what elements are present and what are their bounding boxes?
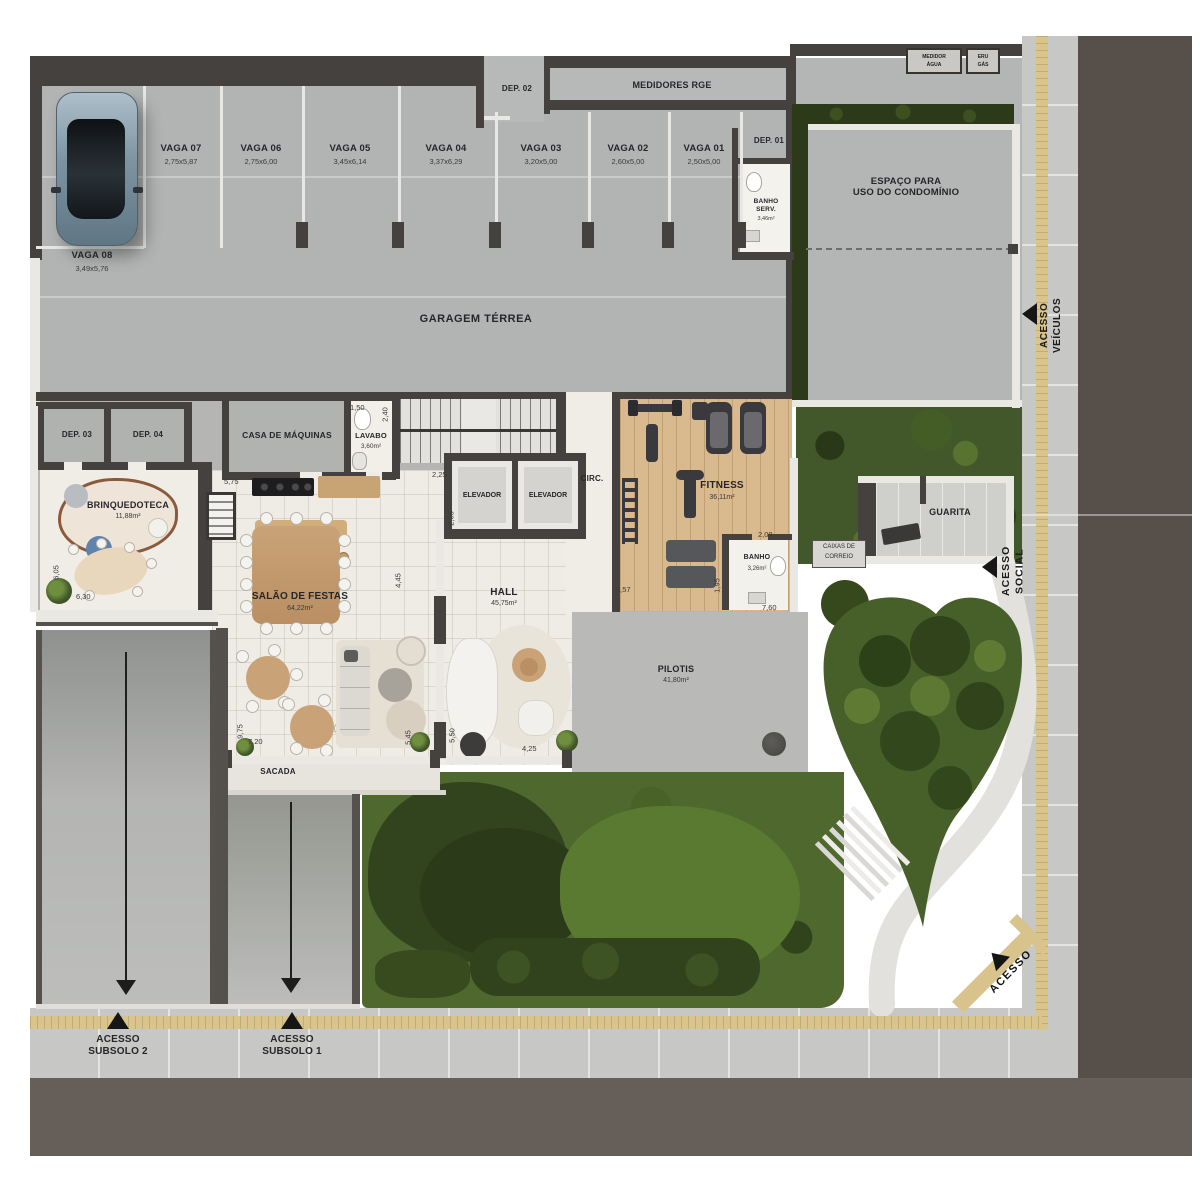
dim-425: 4,25 <box>522 744 537 753</box>
dep04-label: DEP. 04 <box>133 430 163 439</box>
brinq-door-gap <box>64 462 82 470</box>
toilet-icon <box>770 556 786 576</box>
vaga04-label: VAGA 04 <box>426 143 467 154</box>
stall-line <box>143 86 146 248</box>
vaga08-dims: 3,49x5,76 <box>76 264 109 273</box>
sacada-label: SACADA <box>260 767 295 776</box>
salao-hall-post <box>434 596 446 644</box>
chair <box>282 698 295 711</box>
tactile-strip-bottom <box>30 1016 1042 1029</box>
garage-label: GARAGEM TÉRREA <box>420 313 533 326</box>
gym-bench <box>646 424 658 462</box>
condo-dashed-line <box>806 248 1012 250</box>
wall-top-thin <box>548 56 794 68</box>
wall-post <box>562 750 572 768</box>
chair <box>132 586 143 597</box>
subsolo1-label: ACESSO SUBSOLO 1 <box>262 1034 322 1058</box>
ramp-b-wall-right <box>352 794 360 1008</box>
sink-icon <box>744 230 760 242</box>
vaga06-dims: 2,75x6,00 <box>245 157 278 166</box>
dim-720: 7,20 <box>248 737 263 746</box>
street-right <box>1078 36 1192 1154</box>
chair <box>96 538 107 549</box>
round-table <box>246 656 290 700</box>
dep-block-top <box>36 402 192 409</box>
dim-545: 5,45 <box>404 721 413 755</box>
coffee-table <box>378 668 412 702</box>
garage-pillar <box>582 222 594 248</box>
vaga05-label: VAGA 05 <box>330 143 371 154</box>
gym-weight <box>628 400 638 416</box>
dep-block-right <box>184 402 192 466</box>
acesso-veiculos-arrow-icon <box>1022 303 1037 325</box>
treadmill <box>706 402 732 454</box>
chair <box>260 622 273 635</box>
stairs-divider <box>400 429 556 432</box>
hall-label: HALL <box>490 587 517 599</box>
vaga02-label: VAGA 02 <box>608 143 649 154</box>
dim-445: 4,45 <box>394 564 403 598</box>
casa-maq-left <box>222 399 229 479</box>
banho-serv-wall-bottom <box>732 252 794 260</box>
chair <box>68 544 79 555</box>
chair <box>268 644 281 657</box>
chair <box>236 650 249 663</box>
acesso-social-label: ACESSO SOCIAL <box>1000 536 1027 606</box>
brinq-right-wall <box>198 467 212 615</box>
chair <box>318 694 331 707</box>
elevator-2: ELEVADOR <box>518 461 578 529</box>
dim-240: 2,40 <box>381 398 390 432</box>
wall-medidores-bottom <box>530 100 794 110</box>
dim-760: 7,60 <box>762 603 777 612</box>
ramp-curb <box>36 1004 360 1009</box>
medidor-agua-box: MEDIDOR ÁGUA <box>906 48 962 74</box>
ramp-a-arrowhead <box>116 980 136 995</box>
vaga07-dims: 2,75x5,87 <box>165 157 198 166</box>
vaga03-dims: 3,20x5,00 <box>525 157 558 166</box>
dim-357: 3,57 <box>616 585 631 594</box>
acesso-veiculos-label: ACESSO VEÍCULOS <box>1038 290 1064 360</box>
wood-armchair <box>512 648 546 682</box>
casa-maquinas-label: CASA DE MÁQUINAS <box>242 430 332 440</box>
dep02-label: DEP. 02 <box>502 84 532 93</box>
garage-pillar <box>296 222 308 248</box>
chair <box>240 578 253 591</box>
condo-wall-top <box>808 124 1014 130</box>
hedge-left <box>792 104 808 406</box>
car-mirror-right <box>133 187 143 193</box>
dim-225: 2,25 <box>432 470 447 479</box>
vaga01-label: VAGA 01 <box>684 143 725 154</box>
fitness-label: FITNESS <box>700 480 744 492</box>
guarita-wall-top <box>858 476 1008 483</box>
lavabo-area: 3,60m² <box>361 443 381 450</box>
pouf-white <box>148 518 168 538</box>
toilet-icon <box>746 172 762 192</box>
wall-post <box>430 750 440 768</box>
banho-serv-area: 3,46m² <box>757 216 774 222</box>
vaga05-dims: 3,45x6,14 <box>334 157 367 166</box>
subsolo2-arrow-icon <box>107 1012 129 1029</box>
chair <box>240 556 253 569</box>
vaga01-dims: 2,50x5,00 <box>688 157 721 166</box>
condo-post <box>1008 244 1018 254</box>
wood-cabinet <box>318 476 380 498</box>
ramp-top-line <box>36 622 218 626</box>
pouf-gray <box>64 484 88 508</box>
gym-weight <box>672 400 682 416</box>
guarita-label: GUARITA <box>929 507 971 518</box>
chair <box>124 542 135 553</box>
garage-pillar <box>489 222 501 248</box>
ramp-a-arrow <box>125 652 127 982</box>
chair <box>290 668 303 681</box>
banho-label: BANHO <box>744 554 771 562</box>
banho-wall-top <box>722 534 752 540</box>
chair <box>260 512 273 525</box>
cooktop-counter <box>252 478 314 496</box>
floor-plan: MEDIDOR ÁGUA ERU GÁS <box>0 0 1200 1200</box>
vaga08-label: VAGA 08 <box>72 250 113 261</box>
hall-bottom-wall <box>446 756 568 764</box>
treadmill <box>740 402 766 454</box>
condo-wall-right <box>1012 124 1020 408</box>
chair <box>320 622 333 635</box>
garage-pillar <box>734 222 746 248</box>
chair <box>146 558 157 569</box>
salao-bottom-wall <box>228 756 440 764</box>
banho-area: 3,26m² <box>748 566 767 572</box>
dep02-wall-left <box>476 56 484 128</box>
brinq-door-gap <box>128 462 146 470</box>
lavabo-label: LAVABO <box>355 432 387 441</box>
dim-630: 6,30 <box>76 592 91 601</box>
vaga03-label: VAGA 03 <box>521 143 562 154</box>
chair <box>290 512 303 525</box>
banho-serv-label: BANHO SERV. <box>754 198 779 213</box>
ramp-b-arrow <box>290 802 292 980</box>
acesso-social-arrow-icon <box>982 556 997 578</box>
vaga06-label: VAGA 06 <box>241 143 282 154</box>
circ-label: CIRC. <box>581 474 604 483</box>
elevator-1: ELEVADOR <box>452 461 512 529</box>
property-line <box>1022 514 1192 516</box>
salao-area: 64,22m² <box>287 605 313 612</box>
car <box>56 92 138 246</box>
mailboxes: CAIXAS DE CORREIO <box>812 540 866 568</box>
plant <box>410 732 430 752</box>
dep01-label: DEP. 01 <box>754 136 784 145</box>
ramp-a-wall-left <box>36 630 42 1008</box>
car-roof <box>67 119 125 219</box>
ramp-top-band <box>36 610 218 622</box>
radiator <box>206 492 236 540</box>
ramp-b-arrowhead <box>281 978 301 993</box>
guarita-floor <box>876 483 1006 557</box>
plant <box>556 730 578 752</box>
lavabo-right <box>392 399 400 479</box>
dim-975: 9,75 <box>236 715 245 749</box>
chair <box>338 578 351 591</box>
elevator-1-label: ELEVADOR <box>463 492 501 499</box>
garage-pillar <box>392 222 404 248</box>
sink-icon <box>352 452 367 470</box>
dim-150: 1,50 <box>350 403 365 412</box>
wall-left-lower <box>30 258 40 408</box>
dim-205: 2,05 <box>447 502 456 536</box>
brinquedoteca-area: 11,88m² <box>115 513 140 520</box>
eru-gas-box: ERU GÁS <box>966 48 1000 74</box>
subsolo2-label: ACESSO SUBSOLO 2 <box>88 1034 148 1058</box>
condo-wall-bottom <box>792 400 1022 407</box>
chair <box>240 534 253 547</box>
subsolo1-arrow-icon <box>281 1012 303 1029</box>
street-bottom <box>30 1078 1192 1156</box>
armchair <box>396 636 426 666</box>
wall-left <box>30 56 42 260</box>
fitness-area: 36,11m² <box>709 494 734 501</box>
espaco-label: ESPAÇO PARA USO DO CONDOMÍNIO <box>853 176 959 198</box>
gym-mat <box>666 566 716 588</box>
dep03-label: DEP. 03 <box>62 430 92 439</box>
dark-pouf <box>460 732 486 758</box>
chair <box>338 556 351 569</box>
gym-core-machine <box>684 474 696 518</box>
chair <box>290 622 303 635</box>
hedge-top <box>792 104 1014 124</box>
garage-pillar <box>662 222 674 248</box>
chair <box>246 700 259 713</box>
guarita-partition <box>920 476 926 504</box>
ramp-divider-wall <box>216 628 228 1008</box>
sofa-pillow <box>344 650 358 662</box>
vaga04-dims: 3,37x6,29 <box>430 157 463 166</box>
chair <box>290 742 303 755</box>
salao-label: SALÃO DE FESTAS <box>252 591 348 603</box>
chair <box>320 512 333 525</box>
brinq-top-wall <box>36 462 212 470</box>
wall-top-main <box>32 56 478 86</box>
medidores-label: MEDIDORES RGE <box>632 80 711 91</box>
dim-575: 5,75 <box>224 477 239 486</box>
garden-bushes-left <box>375 950 470 998</box>
elevator-2-label: ELEVADOR <box>529 492 567 499</box>
garden-hedge-row <box>470 938 760 996</box>
vaga07-label: VAGA 07 <box>161 143 202 154</box>
outer-wall-left-mid <box>30 406 38 612</box>
white-armchair <box>518 700 554 736</box>
dep-block-mid <box>104 409 111 466</box>
chair <box>338 534 351 547</box>
dim-550: 5,50 <box>448 719 457 753</box>
brinquedoteca-label: BRINQUEDOTECA <box>87 500 169 511</box>
dep02-wall-right <box>544 56 550 114</box>
dim-195: 1,95 <box>713 569 722 603</box>
stall-line <box>220 86 223 248</box>
fitness-wall-left <box>612 392 620 612</box>
circ-opening <box>566 392 614 401</box>
gym-mat <box>666 540 716 562</box>
hall-area: 45,75m² <box>491 600 517 607</box>
gym-core-bar <box>676 470 704 480</box>
pilotis-area: 41,80m² <box>663 677 689 684</box>
dim-605: 6,05 <box>52 556 61 590</box>
vaga02-dims: 2,60x5,00 <box>612 157 645 166</box>
stall-line-vaga08 <box>36 246 144 249</box>
pilotis-column <box>762 732 786 756</box>
gym-ladder <box>622 478 638 544</box>
car-mirror-left <box>51 187 61 193</box>
banho-wall-left <box>722 536 729 610</box>
pilotis-label: PILOTIS <box>658 664 694 675</box>
dim-208: 2,08 <box>758 530 773 539</box>
sacada-outer-wall <box>224 790 446 795</box>
